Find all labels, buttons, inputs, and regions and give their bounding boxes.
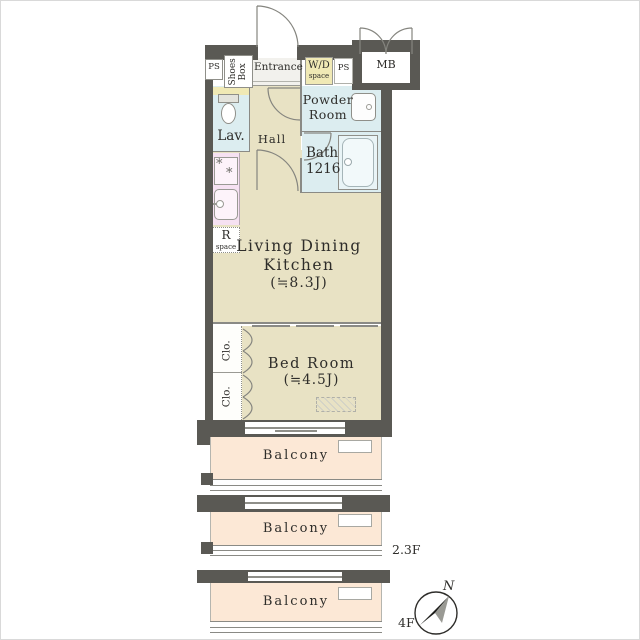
washbasin-icon: [351, 93, 376, 121]
bedroom-label-line2: (≒4.5J): [242, 373, 381, 389]
wall-bottom-left-stub: [197, 437, 210, 445]
floor-level-label-23f: 2.3F: [392, 543, 421, 557]
balcony-1-corner-post: [201, 473, 213, 485]
powder-room-door-icon: [266, 86, 302, 122]
balcony-2-railing: [210, 545, 382, 556]
bedroom-window-sash: [275, 430, 317, 432]
wd-space-label-line1: W/D: [305, 60, 333, 72]
balcony-2-window-line: [245, 502, 342, 504]
floor-level-label-4f: 4F: [398, 616, 415, 630]
balcony-1-label: Balcony: [210, 449, 382, 464]
ldk-label-line1: Living Dining: [213, 238, 385, 256]
lavatory-label: Lav.: [211, 129, 251, 145]
meter-box-label: MB: [362, 59, 410, 72]
compass-icon: N: [412, 576, 466, 638]
washbasin-drain-icon: [366, 104, 372, 110]
ldk-label-line3: (≒8.3J): [213, 275, 385, 291]
closet-lower-label: Clo.: [213, 376, 242, 418]
stove-burner-icon: *: [226, 167, 233, 182]
meter-box-doors-icon: [358, 14, 414, 56]
bedroom-hatched-area: [316, 397, 356, 412]
balcony-3-label: Balcony: [210, 595, 382, 610]
balcony-3-window-line: [248, 576, 342, 578]
closet-upper-label: Clo.: [213, 330, 242, 372]
balcony-3-railing: [210, 621, 382, 633]
bedroom-window-line: [245, 427, 345, 429]
faucet-stem-icon: [213, 203, 217, 205]
shoes-box-label: Shoes Box: [224, 55, 253, 88]
sliding-door-ldk-bedroom: [252, 325, 381, 327]
ldk-door-icon: [256, 149, 300, 193]
compass-north-label: N: [442, 579, 455, 594]
bath-label-line2: 1216: [306, 162, 340, 178]
bedroom-label-line1: Bed Room: [242, 356, 381, 373]
floorplan-canvas: * *: [0, 0, 640, 640]
entrance-door-icon: [256, 4, 302, 50]
toilet-tank-icon: [218, 94, 239, 103]
faucet-icon: [216, 200, 224, 208]
balcony-2-label: Balcony: [210, 522, 382, 537]
wd-space-label-line2: space: [305, 72, 333, 80]
ps-right-label: PS: [334, 64, 353, 74]
entrance-label: Entrance: [254, 61, 300, 73]
ps-left-label: PS: [205, 63, 223, 73]
ldk-label-line2: Kitchen: [213, 257, 385, 275]
hall-label: Hall: [250, 133, 294, 146]
balcony-1-railing: [210, 479, 382, 491]
bath-label-line1: Bath: [306, 146, 340, 162]
toilet-bowl-icon: [221, 103, 236, 124]
partition-bath-left-lower: [300, 158, 302, 193]
bathtub-drain-icon: [344, 158, 352, 166]
stove-burner-icon: *: [216, 158, 223, 173]
entrance-step-line: [252, 81, 301, 82]
partition-ldk-bedroom: [213, 322, 381, 324]
powder-room-label-line1: Powder: [302, 93, 354, 107]
balcony-2-corner-post: [201, 542, 213, 554]
powder-room-label-line2: Room: [302, 108, 354, 122]
closet-divider: [213, 372, 242, 373]
